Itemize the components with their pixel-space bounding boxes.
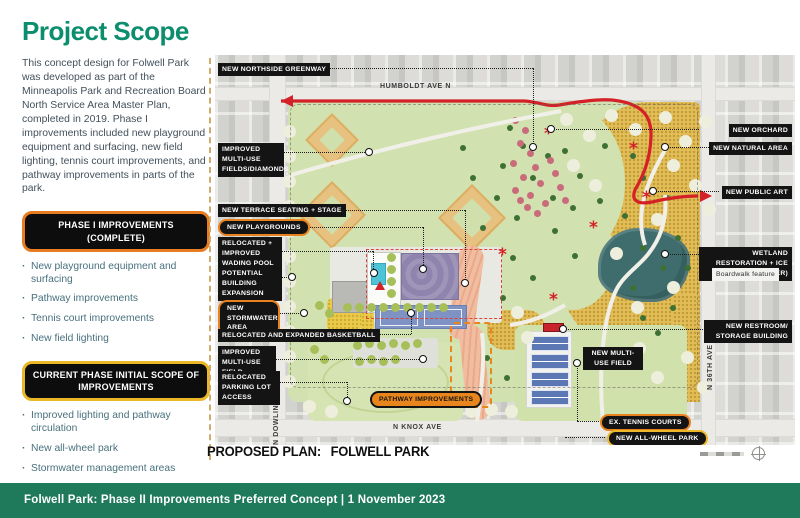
leader-marker <box>343 397 351 405</box>
map-label-pathway: PATHWAY IMPROVEMENTS <box>370 391 482 408</box>
map-label-public-art: NEW PUBLIC ART <box>722 186 792 199</box>
list-item: Pathway improvements <box>22 293 210 306</box>
leader-line <box>667 254 699 255</box>
map-label-orchard: NEW ORCHARD <box>729 124 792 137</box>
left-column: Project Scope This concept design for Fo… <box>22 16 210 503</box>
site-plan-map: * * * * * * <box>215 55 795 445</box>
list-item: Stormwater management areas <box>22 463 210 476</box>
map-label-boardwalk: Boardwalk feature <box>712 268 779 281</box>
leader-line <box>283 152 367 153</box>
leader-marker <box>288 273 296 281</box>
leader-line <box>577 363 578 421</box>
tennis-court <box>531 354 569 369</box>
compass-icon <box>752 447 765 460</box>
building-expansion-outline <box>366 249 502 319</box>
wetland-pond <box>598 228 690 302</box>
leader-line <box>533 68 534 146</box>
leader-marker <box>573 359 581 367</box>
leader-line <box>667 147 713 148</box>
map-label-wading-pool: RELOCATED + IMPROVED WADING POOL <box>218 237 282 271</box>
leader-line <box>465 210 466 280</box>
leader-line <box>577 421 601 422</box>
tennis-court <box>531 390 569 405</box>
map-label-tennis: EX. TENNIS COURTS <box>600 414 691 431</box>
street-label-36th: N 36TH AVE <box>707 344 714 390</box>
leader-marker <box>407 309 415 317</box>
scale-bar <box>700 452 744 456</box>
list-item: New all-wheel park <box>22 443 210 456</box>
leader-line <box>553 129 699 130</box>
leader-marker <box>370 269 378 277</box>
list-item: New playground equipment and surfacing <box>22 261 210 287</box>
map-label-northside-greenway: NEW NORTHSIDE GREENWAY <box>218 63 330 76</box>
footer-text: Folwell Park: Phase II Improvements Pref… <box>24 494 445 506</box>
parking-lot <box>353 338 438 368</box>
current-phase-heading-box: CURRENT PHASE INITIAL SCOPE OF IMPROVEME… <box>22 361 210 401</box>
leader-marker <box>559 325 567 333</box>
tennis-court <box>531 372 569 387</box>
leader-marker <box>461 279 469 287</box>
leader-marker <box>547 125 555 133</box>
leader-line <box>423 227 424 267</box>
leader-marker <box>661 250 669 258</box>
leader-marker <box>529 143 537 151</box>
leader-line <box>279 382 347 383</box>
leader-marker <box>649 187 657 195</box>
plan-caption-prefix: PROPOSED PLAN: <box>207 444 321 459</box>
street-label-knox: N KNOX AVE <box>393 424 442 431</box>
slide: Project Scope This concept design for Fo… <box>0 0 800 518</box>
page-title: Project Scope <box>22 16 210 47</box>
map-label-multiuse-diamonds: IMPROVED MULTI-USE FIELDS/DIAMONDS <box>218 143 284 177</box>
phase1-list: New playground equipment and surfacing P… <box>22 261 210 346</box>
plan-caption-name: FOLWELL PARK <box>331 444 430 459</box>
leader-marker <box>419 265 427 273</box>
plan-caption: PROPOSED PLAN:FOLWELL PARK <box>207 444 429 459</box>
map-label-restroom: NEW RESTROOM/ STORAGE BUILDING <box>704 320 792 343</box>
leader-line <box>341 210 465 211</box>
column-divider <box>209 58 211 460</box>
list-item: Improved lighting and pathway circulatio… <box>22 410 210 436</box>
leader-marker <box>419 355 427 363</box>
map-label-new-multiuse-field: NEW MULTI-USE FIELD <box>583 347 643 370</box>
intro-paragraph: This concept design for Folwell Park was… <box>22 57 210 196</box>
map-label-all-wheel: NEW ALL-WHEEL PARK <box>607 430 708 445</box>
leader-line <box>565 437 605 438</box>
map-label-building-expansion: POTENTIAL BUILDING EXPANSION <box>218 267 282 301</box>
list-item: New field lighting <box>22 333 210 346</box>
leader-marker <box>300 309 308 317</box>
leader-line <box>655 191 719 192</box>
footer-bar: Folwell Park: Phase II Improvements Pref… <box>0 483 800 518</box>
leader-line <box>373 251 374 269</box>
leader-line <box>277 313 301 314</box>
diamond-infield <box>319 127 344 152</box>
list-item: Tennis court improvements <box>22 313 210 326</box>
street-label-humboldt: HUMBOLDT AVE N <box>380 83 451 90</box>
leader-marker <box>661 143 669 151</box>
map-label-terrace-stage: NEW TERRACE SEATING + STAGE <box>218 204 346 217</box>
leader-line <box>317 68 533 69</box>
leader-line <box>565 329 703 330</box>
phase1-heading-box: PHASE I IMPROVEMENTS (COMPLETE) <box>22 211 210 251</box>
existing-building <box>332 281 368 313</box>
tennis-court <box>531 336 569 351</box>
tennis-courts <box>526 331 572 408</box>
leader-marker <box>365 148 373 156</box>
leader-line <box>281 251 373 252</box>
map-label-basketball: RELOCATED AND EXPANDED BASKETBALL <box>218 329 380 342</box>
map-label-parking: RELOCATED PARKING LOT ACCESS <box>218 371 280 405</box>
map-label-natural-area: NEW NATURAL AREA <box>709 142 792 155</box>
diamond-infield <box>452 198 492 238</box>
map-label-playgrounds: NEW PLAYGROUNDS <box>218 219 310 236</box>
leader-line <box>275 359 421 360</box>
